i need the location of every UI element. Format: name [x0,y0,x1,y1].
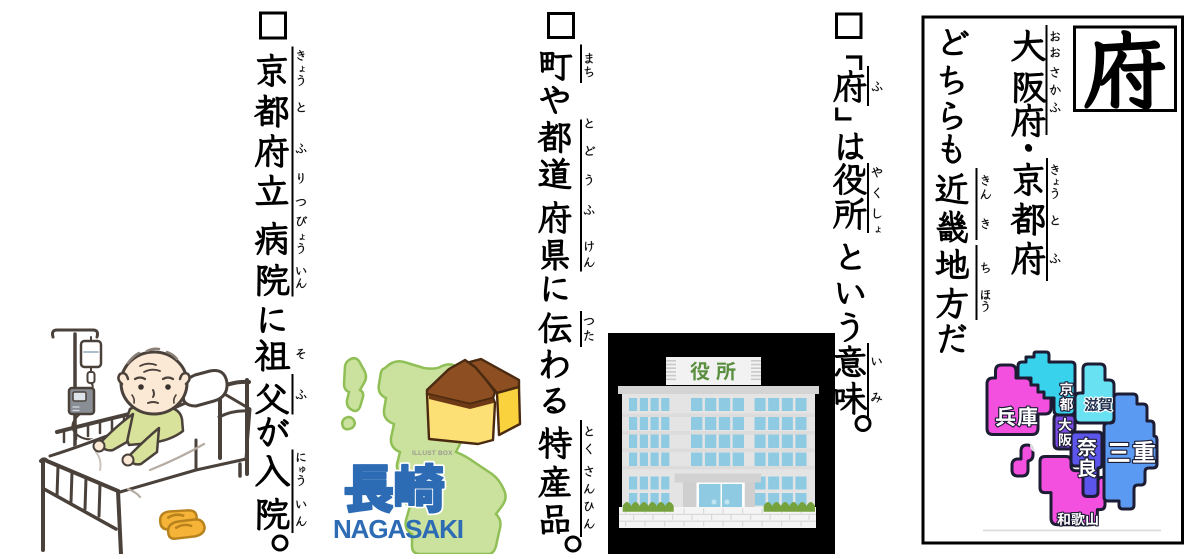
svg-text:ILLUST BOX: ILLUST BOX [412,450,453,457]
svg-text:NAGASAKI: NAGASAKI [333,514,464,544]
